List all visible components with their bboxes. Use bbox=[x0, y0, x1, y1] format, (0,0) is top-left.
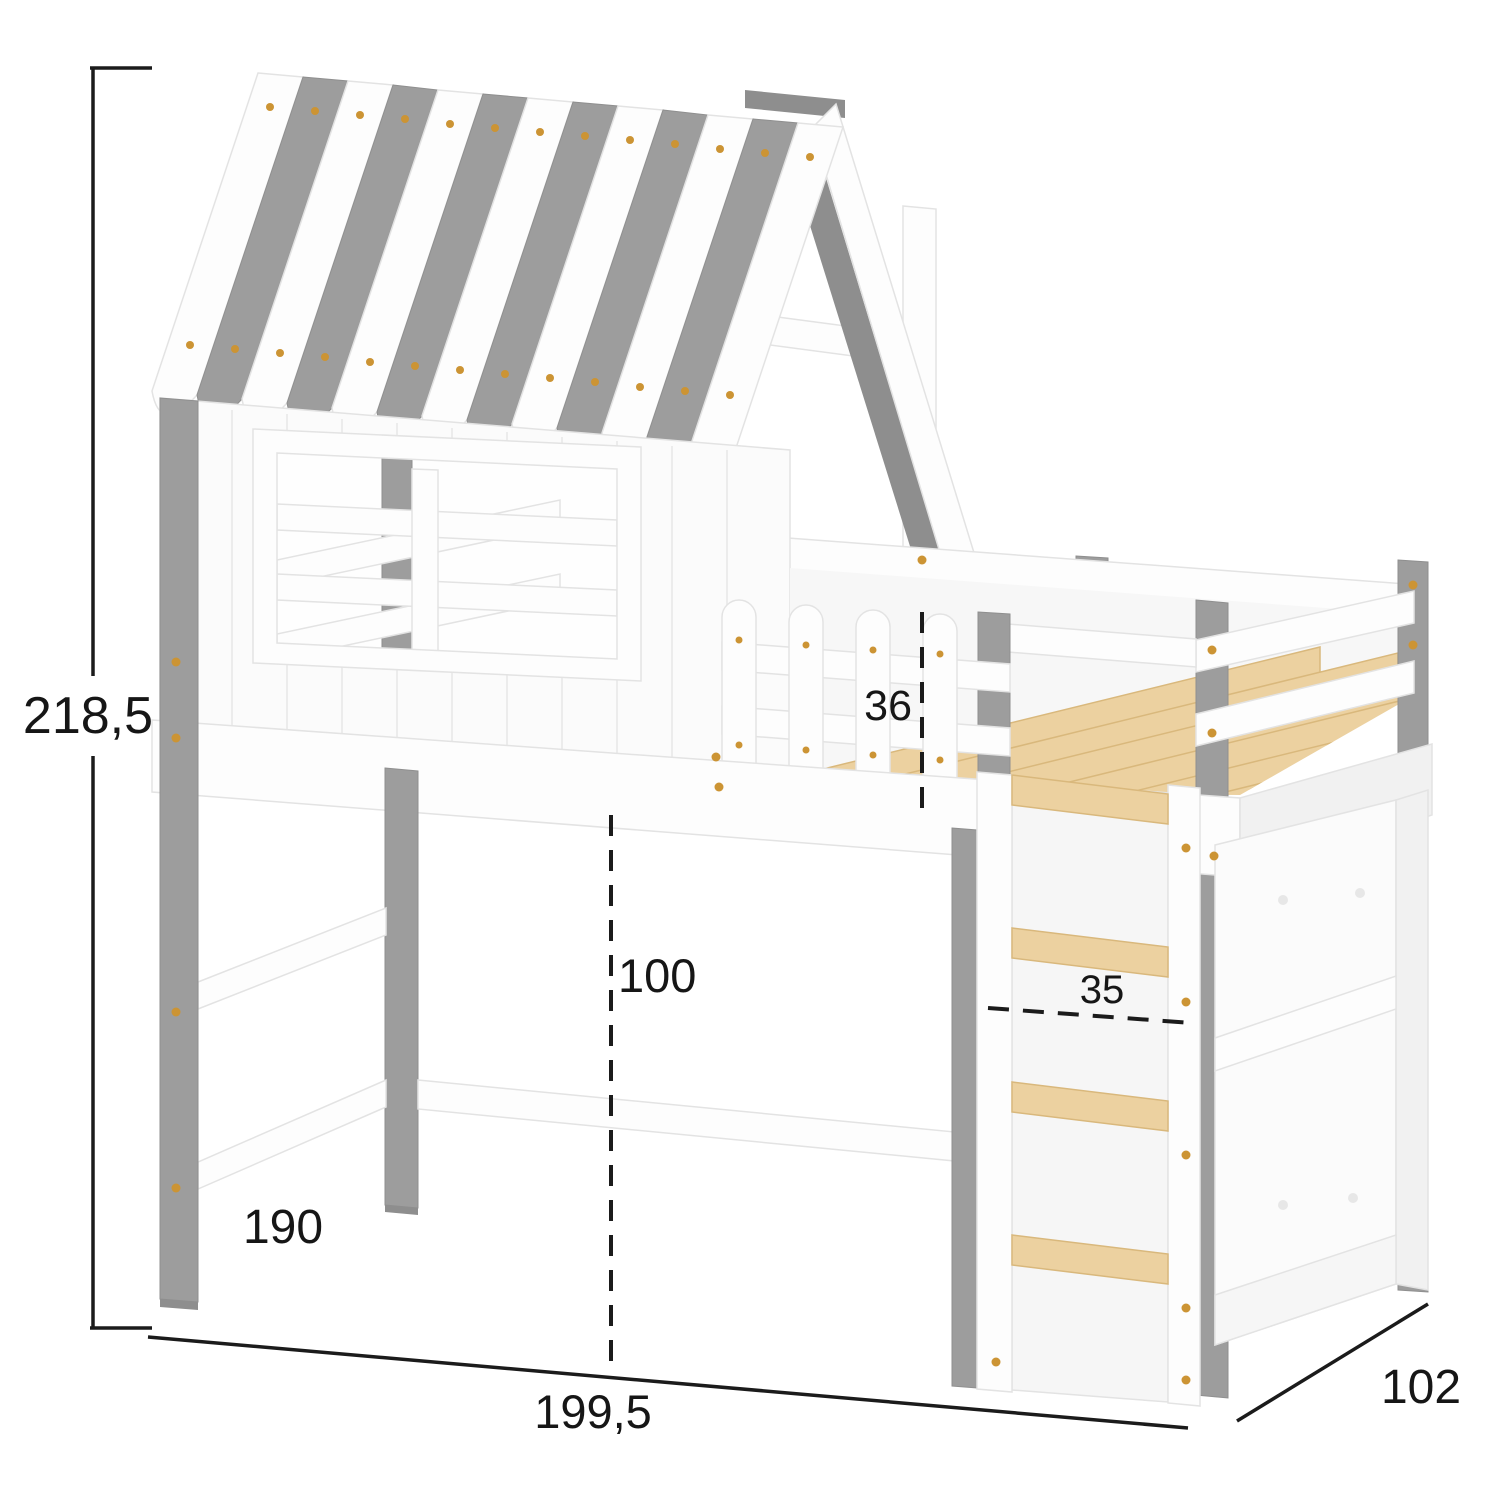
side-cross-rail bbox=[198, 1080, 386, 1189]
ladder bbox=[952, 772, 1200, 1406]
overall-length-label: 199,5 bbox=[534, 1385, 652, 1438]
ladder-left-side bbox=[952, 828, 977, 1388]
dimension-overall-height: 218,5 bbox=[23, 68, 153, 1328]
dimension-leg-height: 190 bbox=[243, 1201, 323, 1254]
ladder-right-rail bbox=[1168, 785, 1200, 1406]
back-left-leg bbox=[385, 768, 418, 1208]
dimension-diagram: 218,5 190 199,5 102 100 36 35 bbox=[0, 0, 1499, 1500]
dimension-underbed-clearance: 100 bbox=[611, 815, 696, 1372]
ladder-left-rail bbox=[977, 772, 1012, 1392]
underbed-clearance-label: 100 bbox=[618, 949, 696, 1002]
loft-bed-drawing: 218,5 190 199,5 102 100 36 35 bbox=[0, 0, 1499, 1500]
ladder-width-label: 35 bbox=[1080, 968, 1125, 1012]
side-cross-rail bbox=[198, 908, 386, 1009]
guardrail-height-label: 36 bbox=[864, 682, 912, 730]
back-bottom-rail bbox=[418, 1080, 965, 1162]
window-bar-vertical bbox=[412, 469, 438, 659]
leg-height-label: 190 bbox=[243, 1201, 323, 1254]
house-front bbox=[160, 398, 790, 770]
overall-height-label: 218,5 bbox=[23, 687, 153, 745]
front-left-leg bbox=[160, 398, 198, 1302]
shelf-unit bbox=[1215, 790, 1428, 1345]
depth-label: 102 bbox=[1381, 1361, 1461, 1414]
shelf-inner-wall bbox=[1396, 790, 1428, 1290]
house-window bbox=[253, 429, 641, 681]
